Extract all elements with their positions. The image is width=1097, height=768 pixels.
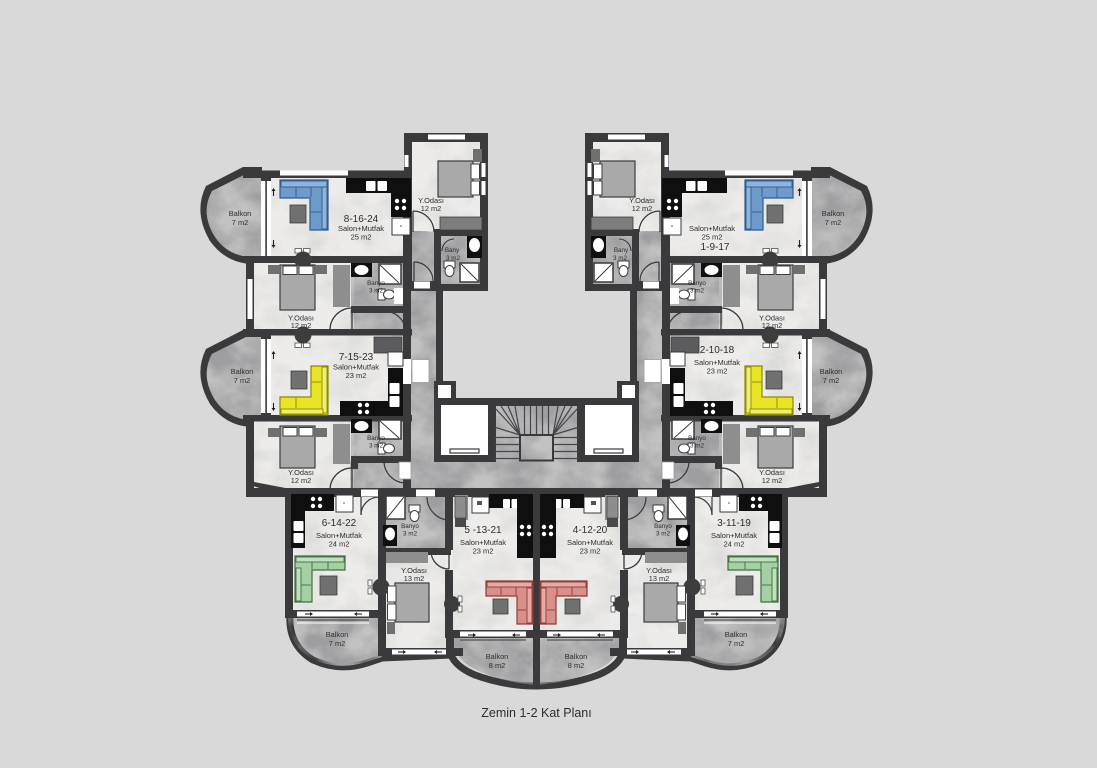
svg-text:Balkon: Balkon [486, 652, 509, 661]
svg-text:Bany: Bany [614, 247, 629, 254]
svg-text:4-12-20: 4-12-20 [573, 525, 608, 536]
svg-text:12 m2: 12 m2 [632, 204, 653, 213]
svg-text:3 m2: 3 m2 [446, 255, 460, 262]
svg-text:Balkon: Balkon [326, 630, 349, 639]
svg-text:Zemin 1-2 Kat Planı: Zemin 1-2 Kat Planı [481, 706, 591, 720]
svg-text:13 m2: 13 m2 [404, 574, 425, 583]
svg-text:1-9-17: 1-9-17 [701, 242, 730, 253]
svg-text:23 m2: 23 m2 [580, 547, 601, 556]
svg-text:12 m2: 12 m2 [291, 476, 312, 485]
svg-text:5 -13-21: 5 -13-21 [464, 525, 502, 536]
svg-text:23 m2: 23 m2 [707, 367, 728, 376]
svg-text:3 m2: 3 m2 [690, 443, 704, 450]
svg-text:12 m2: 12 m2 [291, 321, 312, 330]
svg-text:7-15-23: 7-15-23 [339, 352, 374, 363]
svg-text:12 m2: 12 m2 [421, 204, 442, 213]
svg-text:Banyo: Banyo [688, 280, 706, 287]
svg-text:24 m2: 24 m2 [724, 540, 745, 549]
svg-text:Banyo: Banyo [688, 435, 706, 442]
svg-text:12 m2: 12 m2 [762, 476, 783, 485]
svg-text:Balkon: Balkon [565, 652, 588, 661]
svg-text:25 m2: 25 m2 [351, 233, 372, 242]
svg-text:7 m2: 7 m2 [823, 376, 839, 385]
svg-text:12 m2: 12 m2 [762, 321, 783, 330]
svg-text:8 m2: 8 m2 [489, 661, 505, 670]
svg-text:7 m2: 7 m2 [728, 639, 744, 648]
svg-text:3 m2: 3 m2 [403, 531, 417, 538]
svg-text:24 m2: 24 m2 [329, 540, 350, 549]
svg-text:Balkon: Balkon [229, 209, 252, 218]
svg-text:Banyo: Banyo [401, 523, 419, 530]
svg-text:25 m2: 25 m2 [702, 233, 723, 242]
svg-text:Balkon: Balkon [822, 209, 845, 218]
svg-text:8 m2: 8 m2 [568, 661, 584, 670]
svg-text:7 m2: 7 m2 [825, 218, 841, 227]
svg-text:7 m2: 7 m2 [232, 218, 248, 227]
svg-text:Balkon: Balkon [820, 367, 843, 376]
svg-text:Banyo: Banyo [367, 435, 385, 442]
svg-text:7 m2: 7 m2 [329, 639, 345, 648]
svg-text:2-10-18: 2-10-18 [700, 345, 735, 356]
svg-text:3-11-19: 3-11-19 [717, 518, 751, 529]
svg-text:3 m2: 3 m2 [690, 288, 704, 295]
svg-text:23 m2: 23 m2 [473, 547, 494, 556]
svg-text:13 m2: 13 m2 [649, 574, 670, 583]
svg-text:Banyo: Banyo [367, 280, 385, 287]
svg-text:Bany: Bany [445, 247, 460, 254]
svg-text:3 m2: 3 m2 [369, 288, 383, 295]
svg-text:23 m2: 23 m2 [346, 371, 367, 380]
svg-text:3 m2: 3 m2 [369, 443, 383, 450]
svg-text:Balkon: Balkon [231, 367, 254, 376]
svg-text:3 m2: 3 m2 [656, 531, 670, 538]
svg-text:Balkon: Balkon [725, 630, 748, 639]
svg-text:Banyo: Banyo [654, 523, 672, 530]
svg-text:7 m2: 7 m2 [234, 376, 250, 385]
svg-text:6-14-22: 6-14-22 [322, 518, 357, 529]
svg-text:3 m2: 3 m2 [613, 255, 627, 262]
